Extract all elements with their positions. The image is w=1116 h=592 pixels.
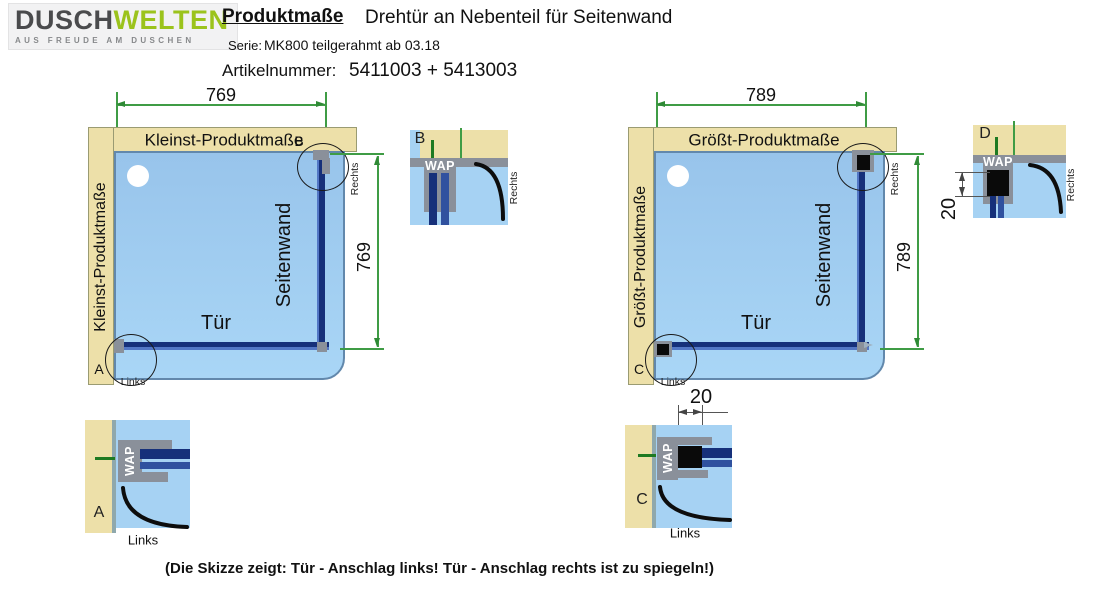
dimension-line-height <box>917 156 919 347</box>
door-label: Tür <box>741 313 771 333</box>
profile-type-label: WAP <box>662 443 675 473</box>
profile-type-label: WAP <box>983 156 1013 169</box>
adjust-dimension-value: 20 <box>939 198 959 220</box>
dimension-arrow-right <box>856 101 865 107</box>
brand-logo-wordmark: DUSCHWELTEN <box>15 7 229 34</box>
detail-view-c: 20 WAP C Links <box>625 388 740 548</box>
sketch-note: (Die Skizze zeigt: Tür - Anschlag links!… <box>165 560 714 577</box>
dimension-arrow-right <box>316 101 325 107</box>
dimension-arrow-left <box>116 101 125 107</box>
side-panel-label: Seitenwand <box>814 203 834 308</box>
door-swing-arc <box>85 420 195 548</box>
dimension-extension-line <box>870 153 924 155</box>
hinge-side-label: Rechts <box>1066 169 1077 202</box>
hinge-side-right-label: Rechts <box>350 163 361 196</box>
detail-view-b: WAP B Rechts <box>410 128 530 228</box>
detail-letter: C <box>636 492 648 508</box>
article-number-label: Artikelnummer: <box>222 61 336 81</box>
brand-logo: DUSCHWELTEN AUS FREUDE AM DUSCHEN <box>8 3 238 50</box>
corner-arrow <box>864 342 873 348</box>
detail-callout-circle-top <box>297 143 349 191</box>
detail-reference-letter-bottom: C <box>634 362 644 376</box>
side-panel-label: Seitenwand <box>274 203 294 308</box>
size-category-label-top: Kleinst-Produktmaße <box>145 132 304 149</box>
series-value: MK800 teilgerahmt ab 03.18 <box>264 37 440 53</box>
detail-callout-circle-bottom <box>645 334 697 386</box>
profile-type-label: WAP <box>124 446 137 476</box>
brand-logo-part1: DUSCH <box>15 5 114 35</box>
hinge-side-right-label: Rechts <box>890 163 901 196</box>
corner-connector <box>317 342 327 352</box>
dimension-extension-line <box>340 348 384 350</box>
door-swing-arc <box>625 388 740 548</box>
dimension-extension-line <box>656 92 658 128</box>
width-dimension-value: 789 <box>746 86 776 104</box>
detail-letter: D <box>979 126 991 142</box>
hinge-side-label: Links <box>670 527 700 540</box>
detail-view-d: WAP D Rechts 20 <box>940 121 1085 226</box>
series-label: Serie: <box>228 38 262 53</box>
page-subtitle: Drehtür an Nebenteil für Seitenwand <box>365 7 672 29</box>
brand-logo-part2: WELTEN <box>114 5 229 35</box>
dimension-extension-line <box>330 153 384 155</box>
profile-type-label: WAP <box>425 160 455 173</box>
height-dimension-value: 789 <box>895 242 913 272</box>
dimension-arrow-down <box>914 338 920 347</box>
detail-view-a: WAP A Links <box>85 420 195 548</box>
width-dimension-value: 769 <box>206 86 236 104</box>
door-label: Tür <box>201 313 231 333</box>
dimension-arrow-up <box>374 156 380 165</box>
product-dimension-sheet: DUSCHWELTEN AUS FREUDE AM DUSCHEN Produk… <box>0 0 1116 592</box>
detail-letter: A <box>94 505 105 521</box>
diagram-largest-dimensions: 789 Größt-Produktmaße Größt-Produktmaße … <box>628 85 928 397</box>
dimension-extension-line <box>116 92 118 128</box>
size-category-label-top: Größt-Produktmaße <box>688 132 839 149</box>
hinge-side-label: Rechts <box>509 172 520 205</box>
dimension-line-height <box>377 156 379 347</box>
article-number-value: 5411003 + 5413003 <box>349 60 517 82</box>
drain-circle <box>667 165 689 187</box>
dimension-arrow-down <box>959 187 965 196</box>
height-dimension-value: 769 <box>355 242 373 272</box>
size-category-label-side: Größt-Produktmaße <box>633 186 649 328</box>
diagram-smallest-dimensions: 769 Kleinst-Produktmaße Kleinst-Produktm… <box>88 85 388 397</box>
detail-callout-circle-top <box>837 143 889 191</box>
size-category-label-side: Kleinst-Produktmaße <box>93 182 109 331</box>
page-title: Produktmaße <box>222 6 343 28</box>
detail-callout-circle-bottom <box>105 334 157 386</box>
dimension-extension-line <box>955 196 990 197</box>
dimension-arrow-down <box>374 338 380 347</box>
dimension-extension-line <box>880 348 924 350</box>
hinge-side-label: Links <box>128 534 158 547</box>
detail-reference-letter-top: B <box>294 134 303 148</box>
detail-letter: B <box>415 131 426 147</box>
drain-circle <box>127 165 149 187</box>
dimension-arrow-left <box>656 101 665 107</box>
dimension-arrow-up <box>959 172 965 181</box>
dimension-arrow-up <box>914 156 920 165</box>
brand-tagline: AUS FREUDE AM DUSCHEN <box>15 36 229 45</box>
detail-reference-letter-bottom: A <box>94 362 103 376</box>
